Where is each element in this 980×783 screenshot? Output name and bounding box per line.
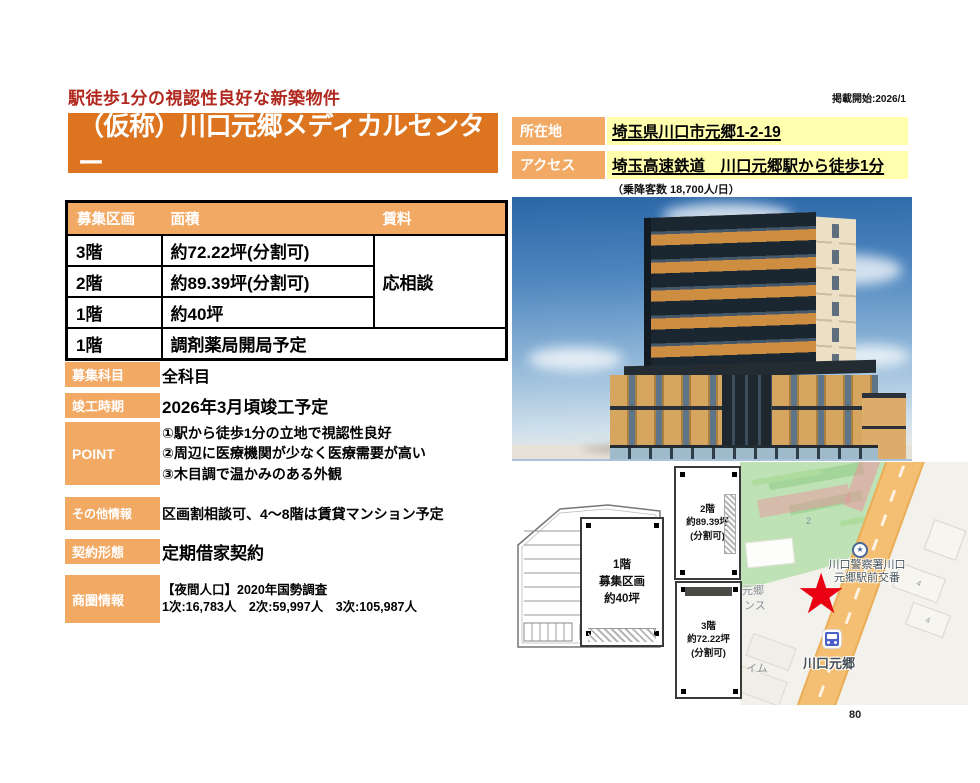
map-road-number: 2: [806, 516, 811, 526]
map-partial-label: ンス: [744, 597, 766, 613]
cell-floor-2f: 2階: [67, 266, 162, 297]
cell-pharmacy-note: 調剤薬局開局予定: [162, 328, 507, 360]
cell-area-1f: 約40坪: [162, 297, 374, 328]
cell-rent: 応相談: [374, 235, 507, 328]
plan-1f-line-1: 1階: [613, 557, 631, 574]
building-center-recess: [722, 375, 772, 445]
value-contract-type: 定期借家契約: [162, 539, 264, 564]
train-station-icon: [823, 630, 841, 648]
police-star-glyph: ★: [856, 546, 863, 554]
building-upper-tower: [644, 212, 816, 368]
table-row: 3階 約72.22坪(分割可) 応相談: [67, 235, 507, 266]
cell-floor-1f: 1階: [67, 297, 162, 328]
plan-2f-line-1: 2階: [700, 503, 715, 517]
location-label: 所在地: [512, 117, 605, 145]
building-side-face: [816, 217, 856, 371]
location-map: 4 4 2 ★ 川口警察署川口 元郷駅前交番 ★ 川口元郷 元郷 ンス イム: [740, 462, 968, 705]
station-name-label: 川口元郷: [774, 653, 884, 672]
access-label: アクセス: [512, 151, 605, 179]
plan-1f-line-2: 募集区画: [599, 574, 645, 591]
value-point: ①駅から徒歩1分の立地で視認性良好 ②周辺に医療機関が少なく医療需要が高い ③木…: [162, 422, 426, 485]
table-row: 1階 調剤薬局開局予定: [67, 328, 507, 360]
page-number: 80: [849, 709, 861, 721]
header-rent: 賃料: [374, 202, 507, 236]
trade-area-line-2: 1次:16,783人 2次:59,997人 3次:105,987人: [162, 599, 417, 616]
cell-floor-3f: 3階: [67, 235, 162, 266]
map-building-shape: [745, 538, 795, 569]
block-number: 4: [924, 615, 931, 625]
value-completion: 2026年3月頃竣工予定: [162, 393, 328, 418]
floor-plan-1f: 1階 募集区画 約40坪: [580, 517, 664, 647]
plan-3f-line-1: 3階: [701, 620, 716, 634]
plan-2f-line-3: (分割可): [690, 530, 725, 544]
cloud: [528, 347, 623, 371]
building-name-banner: （仮称）川口元郷メディカルセンター: [68, 113, 498, 173]
trade-area-line-1: 【夜間人口】2020年国勢調査: [162, 582, 417, 599]
location-value-text: 埼玉県川口市元郷1-2-19: [612, 120, 781, 142]
cell-floor-1f-pharmacy: 1階: [67, 328, 162, 360]
label-completion: 竣工時期: [65, 393, 160, 418]
access-value: 埼玉高速鉄道 川口元郷駅から徒歩1分: [607, 151, 908, 179]
point-line-1: ①駅から徒歩1分の立地で視認性良好: [162, 423, 426, 444]
plan-3f-line-2: 約72.22坪: [687, 633, 730, 647]
plan-2f-line-2: 約89.39坪: [686, 516, 729, 530]
floor-plan-3f: 3階 約72.22坪 (分割可): [675, 581, 742, 699]
floor-plan-2f: 2階 約89.39坪 (分割可): [674, 466, 741, 580]
value-trade-area: 【夜間人口】2020年国勢調査 1次:16,783人 2次:59,997人 3次…: [162, 575, 417, 623]
property-flyer-page: 駅徒歩1分の視認性良好な新築物件 掲載開始:2026/1 （仮称）川口元郷メディ…: [0, 0, 980, 783]
building-podium: [610, 375, 878, 445]
map-city-block: [924, 519, 967, 561]
label-contract-type: 契約形態: [65, 539, 160, 564]
passenger-count-note: （乗降客数 18,700人/日）: [612, 181, 740, 197]
header-area: 面積: [162, 202, 374, 236]
police-badge-icon: ★: [852, 542, 868, 558]
label-other-info: その他情報: [65, 497, 160, 530]
offer-table-header-row: 募集区画 面積 賃料: [67, 202, 507, 236]
map-partial-label: 元郷: [742, 582, 764, 598]
header-floor: 募集区画: [67, 202, 162, 236]
location-star-icon: ★: [796, 566, 846, 622]
building-rendering-image: [512, 197, 912, 461]
point-line-2: ②周辺に医療機関が少なく医療需要が高い: [162, 443, 426, 464]
cell-area-2f: 約89.39坪(分割可): [162, 266, 374, 297]
publish-start-date: 掲載開始:2026/1: [832, 90, 906, 105]
location-value: 埼玉県川口市元郷1-2-19: [607, 117, 908, 145]
value-other-info: 区画割相談可、4～8階は賃貸マンション予定: [162, 497, 444, 530]
label-trade-area: 商圏情報: [65, 575, 160, 623]
label-point: POINT: [65, 422, 160, 485]
access-value-text: 埼玉高速鉄道 川口元郷駅から徒歩1分: [612, 154, 884, 176]
value-departments: 全科目: [162, 362, 210, 387]
map-city-block: 4: [905, 602, 951, 638]
plan-3f-line-3: (分割可): [691, 647, 726, 661]
building-storefront-glass: [610, 445, 878, 461]
offer-table: 募集区画 面積 賃料 3階 約72.22坪(分割可) 応相談 2階 約89.39…: [65, 200, 508, 361]
plan-1f-line-3: 約40坪: [604, 591, 640, 608]
map-partial-label: イム: [746, 660, 768, 676]
point-line-3: ③木目調で温かみのある外観: [162, 464, 426, 485]
label-departments: 募集科目: [65, 362, 160, 387]
cell-area-3f: 約72.22坪(分割可): [162, 235, 374, 266]
